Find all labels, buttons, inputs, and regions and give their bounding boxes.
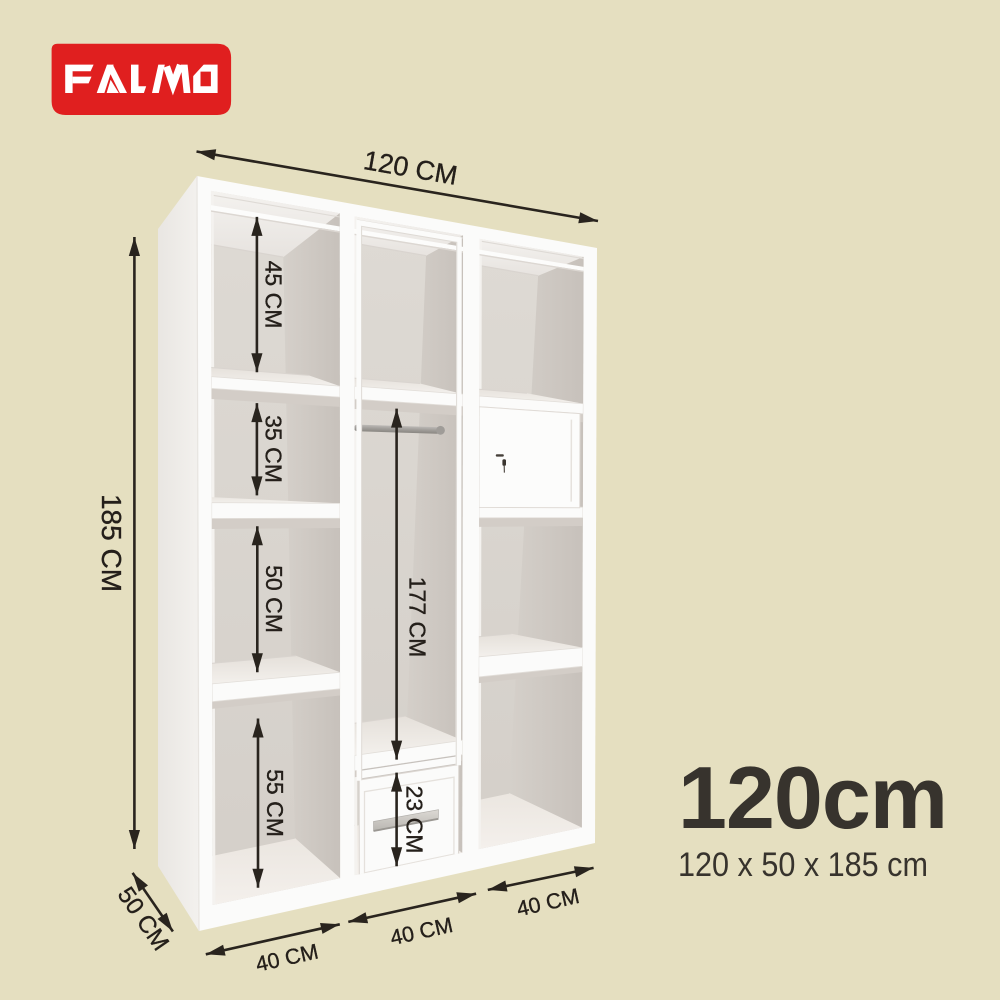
svg-text:45 CM: 45 CM [261, 261, 287, 329]
svg-text:120 x 50 x 185 cm: 120 x 50 x 185 cm [678, 846, 928, 884]
svg-text:55 CM: 55 CM [262, 769, 288, 837]
svg-text:177 CM: 177 CM [405, 577, 431, 658]
svg-text:120cm: 120cm [678, 748, 947, 847]
svg-text:35 CM: 35 CM [261, 415, 287, 483]
svg-text:50 CM: 50 CM [261, 565, 287, 633]
svg-text:185 CM: 185 CM [96, 494, 127, 592]
svg-text:23 CM: 23 CM [402, 786, 428, 854]
